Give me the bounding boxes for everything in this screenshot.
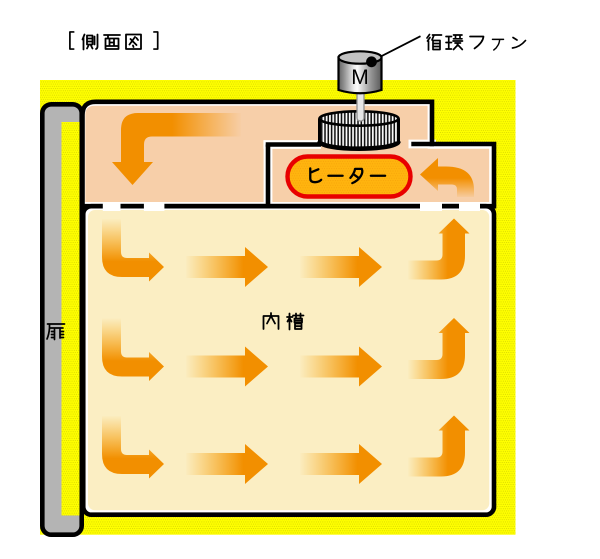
- svg-text:M: M: [351, 66, 369, 89]
